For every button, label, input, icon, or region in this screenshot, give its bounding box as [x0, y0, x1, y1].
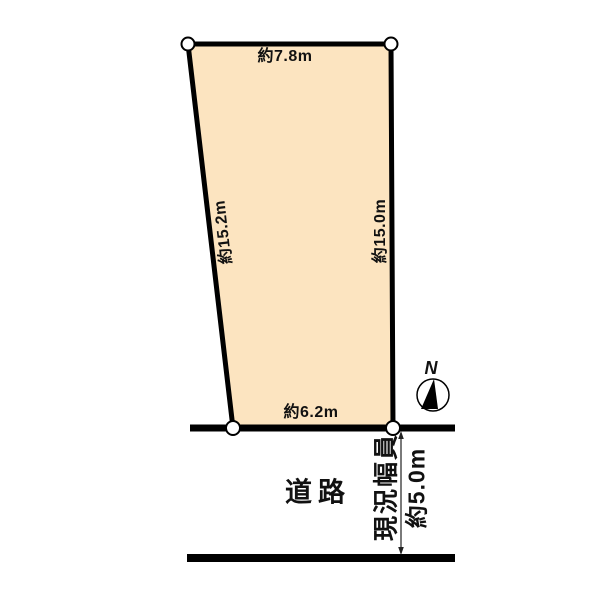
- road-width-label: 現況幅員: [375, 433, 400, 541]
- dimension-arrow-down-icon: [398, 547, 404, 555]
- road-width-value: 約5.0m: [406, 448, 429, 528]
- road-label: 道路: [285, 480, 351, 507]
- north-label: N: [425, 359, 438, 377]
- top-dimension-label: 約7.8m: [258, 49, 313, 65]
- right-dimension-label: 約15.0m: [373, 199, 389, 263]
- plot-diagram: 約7.8m 約15.2m 約15.0m 約6.2m 道路 現況幅員 約5.0m …: [0, 0, 600, 600]
- diagram-canvas: [0, 0, 600, 600]
- corner-marker-top-left: [182, 38, 195, 51]
- corner-marker-top-right: [385, 38, 398, 51]
- corner-marker-bottom-left: [226, 421, 240, 435]
- bottom-dimension-label: 約6.2m: [284, 405, 339, 421]
